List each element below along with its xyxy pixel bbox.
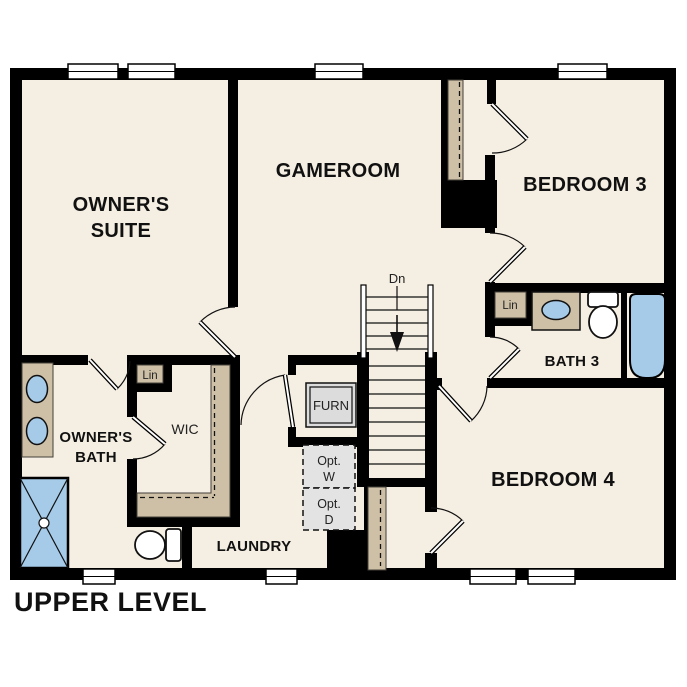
laundry-label: LAUNDRY	[217, 538, 292, 555]
opt-dryer-label-line2: D	[324, 513, 333, 527]
plan-title: UPPER LEVEL	[14, 587, 207, 617]
owners-toilet	[135, 529, 181, 561]
bath3-toilet	[588, 292, 618, 338]
bedroom4-label: BEDROOM 4	[491, 469, 615, 491]
bath3-label: BATH 3	[545, 353, 600, 370]
bath3-tub	[630, 294, 665, 378]
wic-label: WIC	[171, 421, 198, 437]
opt-dryer-label-line1: Opt.	[317, 497, 341, 511]
bedroom4-closet-shelf	[368, 487, 386, 570]
gameroom-label: GAMEROOM	[276, 160, 401, 182]
bedroom3-closet-shelf	[448, 80, 463, 180]
bedroom3-label: BEDROOM 3	[523, 174, 647, 196]
owners-suite-label-line1: OWNER'S	[73, 194, 170, 216]
owners-linen-label: Lin	[142, 370, 157, 382]
owners-bath-label-line2: BATH	[75, 449, 117, 466]
owners-bath-label-line1: OWNER'S	[59, 429, 132, 446]
stairs-dn-label: Dn	[389, 271, 406, 286]
owners-suite-label-line2: SUITE	[91, 220, 151, 242]
bath3-linen-label: Lin	[502, 300, 517, 312]
furnace-label: FURN	[313, 398, 349, 413]
opt-washer-label-line2: W	[323, 470, 335, 484]
owners-shower	[20, 478, 68, 568]
floor-plan-page: OWNER'S SUITE GAMEROOM BEDROOM 3 BEDROOM…	[0, 0, 687, 687]
bath3-sink	[542, 301, 570, 320]
opt-washer-label-line1: Opt.	[317, 454, 341, 468]
floor-plan-drawing: OWNER'S SUITE GAMEROOM BEDROOM 3 BEDROOM…	[0, 0, 687, 687]
